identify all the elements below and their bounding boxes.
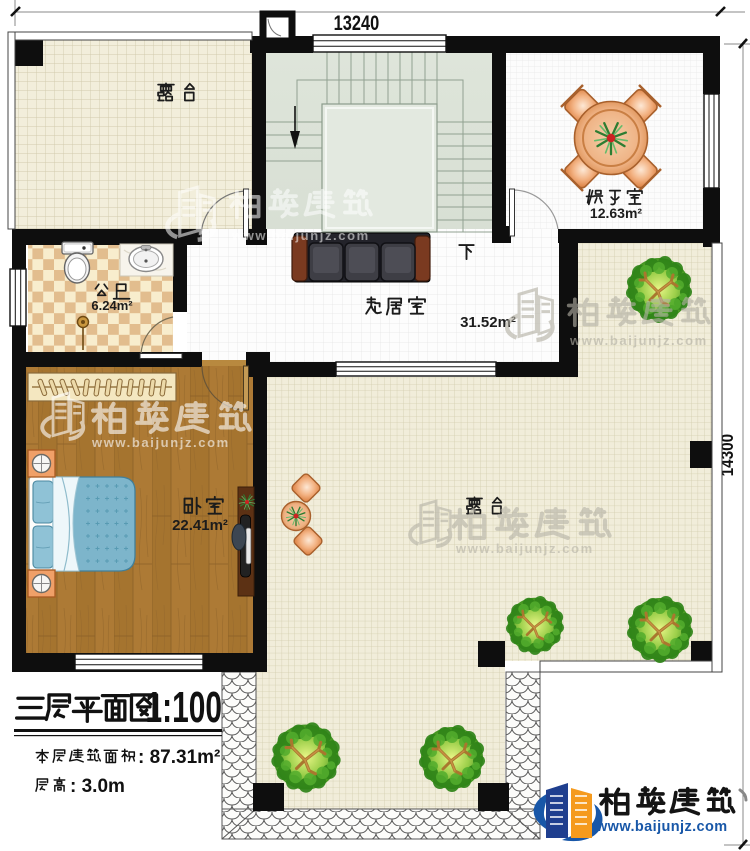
svg-text:13240: 13240 <box>334 11 380 34</box>
svg-text:12.63m²: 12.63m² <box>590 205 642 221</box>
svg-text:www.baijunjz.com: www.baijunjz.com <box>231 228 370 243</box>
svg-text:6.24m²: 6.24m² <box>91 298 133 313</box>
svg-text:www.baijunjz.com: www.baijunjz.com <box>595 819 728 835</box>
svg-text:: 3.0m: : 3.0m <box>70 776 125 797</box>
svg-text:1:100: 1:100 <box>146 682 223 731</box>
svg-text:www.baijunjz.com: www.baijunjz.com <box>455 541 594 556</box>
svg-text:www.baijunjz.com: www.baijunjz.com <box>91 435 230 450</box>
svg-text:: 87.31m²: : 87.31m² <box>138 747 220 768</box>
svg-text:22.41m²: 22.41m² <box>172 517 228 534</box>
svg-text:www.baijunjz.com: www.baijunjz.com <box>569 333 708 348</box>
